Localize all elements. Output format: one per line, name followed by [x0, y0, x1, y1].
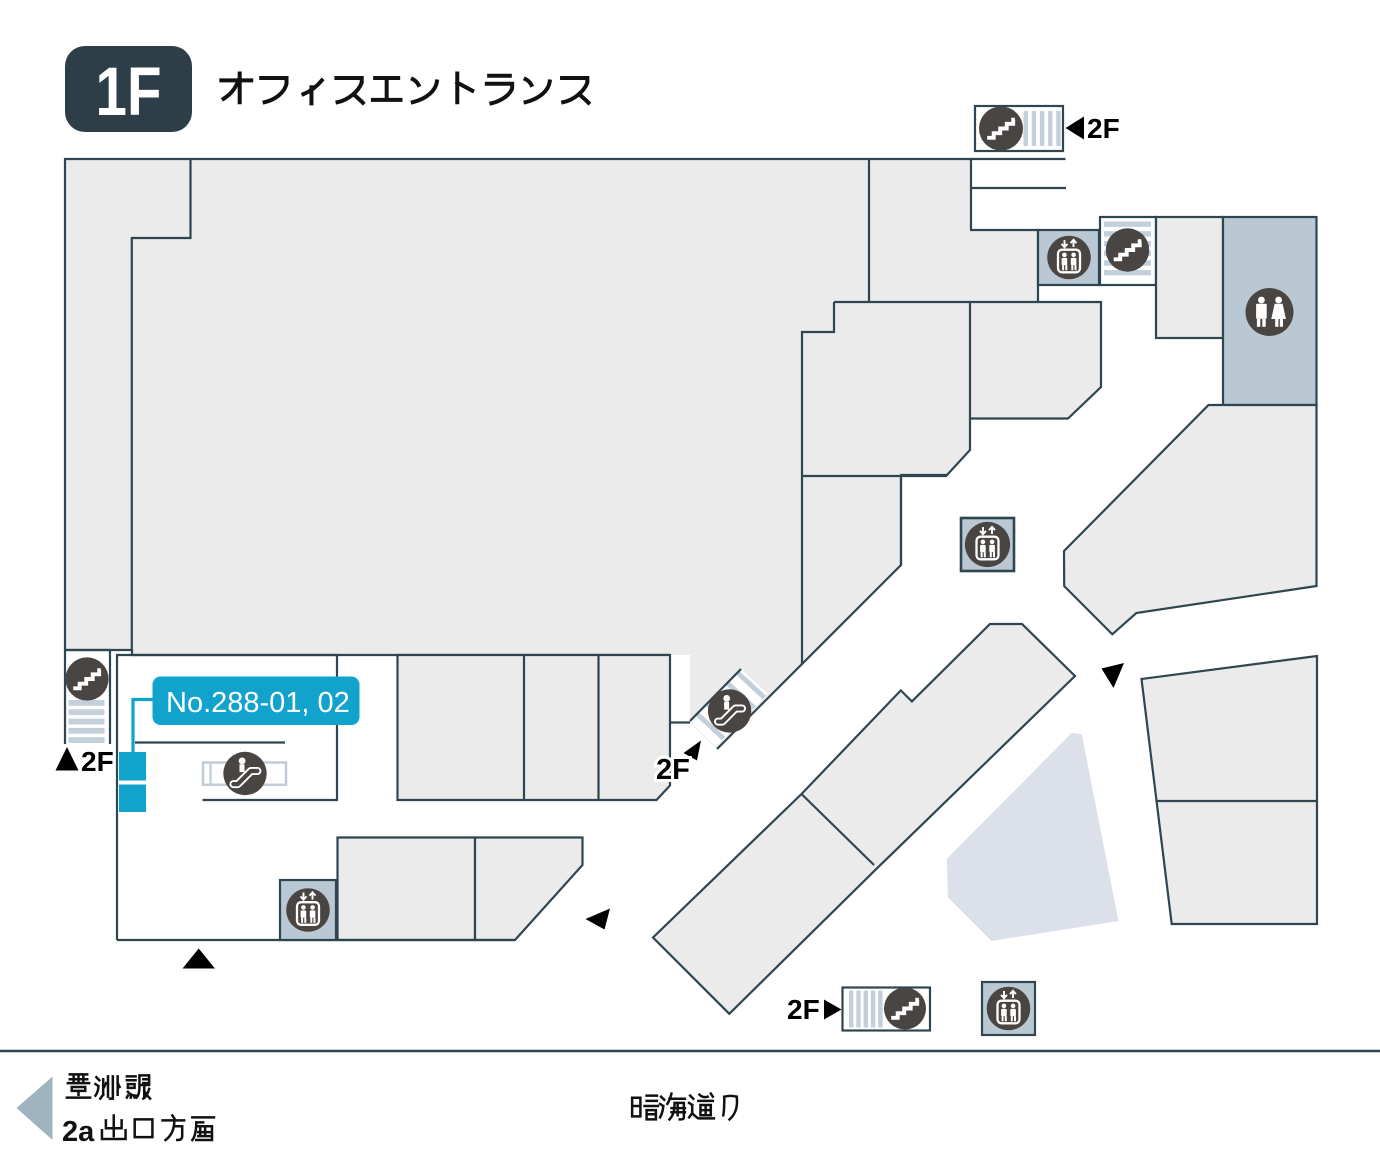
svg-text:1F: 1F	[96, 53, 162, 130]
svg-text:2F: 2F	[1087, 113, 1120, 144]
svg-text:No.288-01, 02: No.288-01, 02	[166, 687, 350, 719]
svg-text:2F: 2F	[787, 994, 820, 1025]
svg-text:2F: 2F	[81, 746, 114, 777]
svg-text:2F: 2F	[656, 754, 690, 786]
svg-text:2a: 2a	[62, 1116, 95, 1148]
